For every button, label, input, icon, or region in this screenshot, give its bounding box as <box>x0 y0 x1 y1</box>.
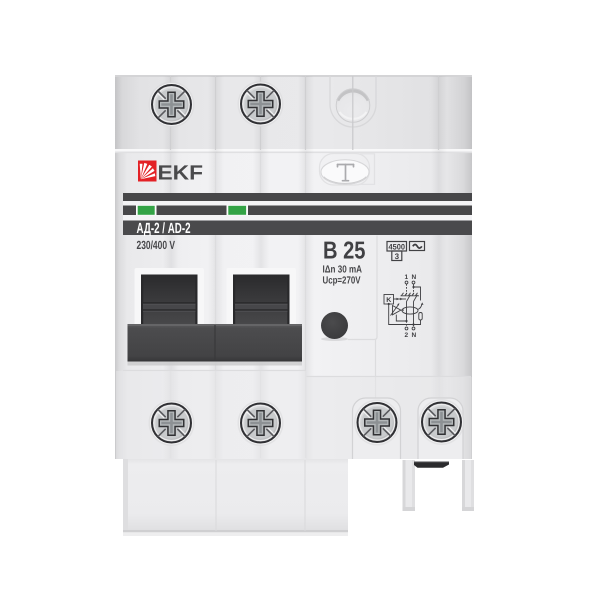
svg-text:1: 1 <box>404 274 408 281</box>
svg-text:IΔn 30 mA: IΔn 30 mA <box>323 265 363 276</box>
svg-text:АД-2 / AD-2: АД-2 / AD-2 <box>137 221 191 237</box>
svg-text:EKF: EKF <box>158 162 204 185</box>
svg-text:Ucp=270V: Ucp=270V <box>323 276 361 287</box>
svg-text:B 25: B 25 <box>323 238 366 265</box>
svg-text:4500: 4500 <box>388 242 405 251</box>
svg-text:K: K <box>386 297 391 304</box>
svg-text:3: 3 <box>395 252 400 261</box>
svg-text:230/400 V: 230/400 V <box>137 238 176 252</box>
svg-text:N: N <box>411 274 416 281</box>
svg-text:N: N <box>411 332 416 339</box>
svg-text:2: 2 <box>404 332 408 339</box>
